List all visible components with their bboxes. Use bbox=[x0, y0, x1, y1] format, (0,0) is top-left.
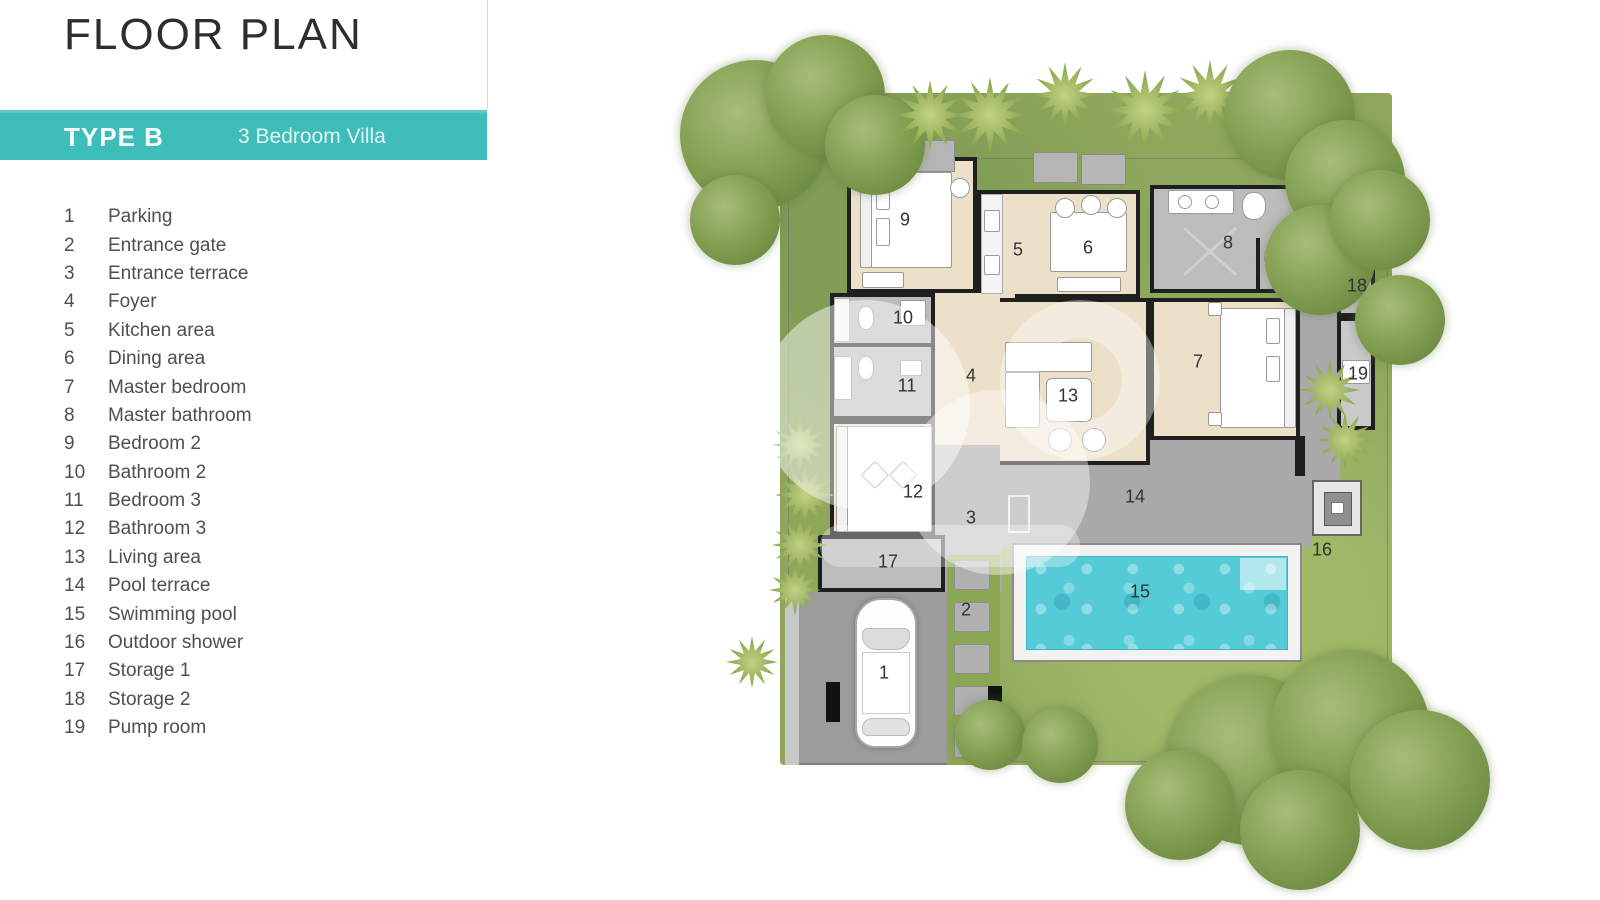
legend-item-1: 1Parking bbox=[64, 203, 404, 231]
pillow bbox=[1266, 318, 1280, 344]
plan-label-pump-room: 19 bbox=[1348, 364, 1368, 385]
dining-chair bbox=[1081, 195, 1101, 215]
legend-list: 1Parking 2Entrance gate 3Entrance terrac… bbox=[64, 203, 404, 742]
nightstand bbox=[1208, 412, 1222, 426]
legend-item-12: 12Bathroom 3 bbox=[64, 515, 404, 543]
legend-num: 2 bbox=[64, 235, 108, 257]
bath-counter bbox=[834, 298, 850, 342]
dining-chair bbox=[1055, 198, 1075, 218]
plan-label-swimming-pool: 15 bbox=[1130, 582, 1150, 603]
plan-label-bedroom-3: 11 bbox=[898, 376, 917, 397]
type-label: TYPE B bbox=[64, 122, 164, 153]
tree bbox=[955, 700, 1025, 770]
legend-item-18: 18Storage 2 bbox=[64, 686, 404, 714]
plan-label-foyer: 4 bbox=[966, 366, 976, 387]
plan-label-kitchen: 5 bbox=[1013, 240, 1023, 261]
legend-label: Foyer bbox=[108, 291, 157, 313]
legend-num: 15 bbox=[64, 604, 108, 626]
nightstand bbox=[1208, 302, 1222, 316]
legend-item-9: 9Bedroom 2 bbox=[64, 430, 404, 458]
stepping-stone bbox=[954, 602, 990, 632]
plan-label-entrance-terrace: 3 bbox=[966, 508, 976, 529]
legend-num: 12 bbox=[64, 518, 108, 540]
legend-item-8: 8Master bathroom bbox=[64, 402, 404, 430]
sofa bbox=[1005, 342, 1092, 372]
plan-label-storage-1: 17 bbox=[878, 552, 898, 573]
legend-num: 6 bbox=[64, 348, 108, 370]
legend-item-13: 13Living area bbox=[64, 544, 404, 572]
dining-bench bbox=[1057, 277, 1121, 292]
stepping-stone bbox=[954, 560, 990, 590]
legend-num: 16 bbox=[64, 632, 108, 654]
legend-num: 4 bbox=[64, 291, 108, 313]
floor-plan-page: FLOOR PLAN TYPE B 3 Bedroom Villa 1Parki… bbox=[0, 0, 1600, 900]
legend-item-19: 19Pump room bbox=[64, 714, 404, 742]
tree bbox=[1125, 750, 1235, 860]
toilet bbox=[1242, 192, 1266, 220]
legend-item-4: 4Foyer bbox=[64, 288, 404, 316]
wall-stub bbox=[1295, 436, 1305, 476]
interior-wall bbox=[834, 343, 931, 347]
legend-num: 8 bbox=[64, 405, 108, 427]
legend-item-3: 3Entrance terrace bbox=[64, 260, 404, 288]
roof-unit bbox=[1081, 154, 1126, 185]
legend-label: Entrance terrace bbox=[108, 263, 248, 285]
bed-headboard bbox=[1284, 308, 1296, 428]
stepping-stone bbox=[954, 644, 990, 674]
kitchen-stove bbox=[984, 255, 1000, 275]
toilet bbox=[858, 356, 874, 380]
lounge-chair bbox=[1082, 428, 1106, 452]
legend-num: 7 bbox=[64, 377, 108, 399]
legend-label: Dining area bbox=[108, 348, 205, 370]
legend-label: Storage 1 bbox=[108, 660, 190, 682]
page-title: FLOOR PLAN bbox=[64, 10, 363, 60]
legend-item-16: 16Outdoor shower bbox=[64, 629, 404, 657]
roof-unit bbox=[1033, 152, 1078, 183]
legend-num: 19 bbox=[64, 717, 108, 739]
legend-label: Bathroom 3 bbox=[108, 518, 206, 540]
basin bbox=[1178, 195, 1192, 209]
gate-post bbox=[826, 682, 840, 722]
tree bbox=[1022, 707, 1098, 783]
legend-label: Storage 2 bbox=[108, 689, 190, 711]
legend-label: Master bathroom bbox=[108, 405, 252, 427]
legend-num: 3 bbox=[64, 263, 108, 285]
plan-label-master-bathroom: 8 bbox=[1223, 233, 1233, 254]
tree bbox=[825, 95, 925, 195]
outdoor-shower bbox=[1312, 480, 1362, 536]
car-windshield bbox=[862, 628, 910, 650]
plan-label-bathroom-2: 10 bbox=[893, 308, 913, 329]
pool-ledge bbox=[1240, 558, 1286, 590]
site-plan: 1 2 3 4 5 6 7 8 9 10 11 12 13 14 15 16 1… bbox=[700, 60, 1480, 880]
dining-chair bbox=[1107, 198, 1127, 218]
legend-num: 13 bbox=[64, 547, 108, 569]
legend-num: 5 bbox=[64, 320, 108, 342]
sink bbox=[900, 360, 922, 376]
type-banner: TYPE B 3 Bedroom Villa bbox=[0, 110, 487, 160]
legend-label: Kitchen area bbox=[108, 320, 215, 342]
legend-label: Bedroom 2 bbox=[108, 433, 201, 455]
bathtub bbox=[834, 356, 852, 400]
plan-label-parking: 1 bbox=[879, 663, 889, 684]
bench bbox=[862, 272, 904, 288]
lounge-chair bbox=[1048, 428, 1072, 452]
legend-num: 10 bbox=[64, 462, 108, 484]
palm-tree bbox=[726, 636, 778, 688]
legend-item-2: 2Entrance gate bbox=[64, 231, 404, 259]
car-rear-window bbox=[862, 718, 910, 736]
tree bbox=[1350, 710, 1490, 850]
legend-label: Bedroom 3 bbox=[108, 490, 201, 512]
sidewalk-strip bbox=[785, 592, 799, 765]
legend-item-17: 17Storage 1 bbox=[64, 657, 404, 685]
plan-label-outdoor-shower: 16 bbox=[1312, 540, 1332, 561]
legend-label: Parking bbox=[108, 206, 172, 228]
legend-label: Pool terrace bbox=[108, 575, 210, 597]
legend-label: Bathroom 2 bbox=[108, 462, 206, 484]
legend-num: 17 bbox=[64, 660, 108, 682]
kitchen-sink bbox=[984, 210, 1000, 232]
legend-num: 18 bbox=[64, 689, 108, 711]
sofa bbox=[1005, 372, 1040, 428]
legend-num: 1 bbox=[64, 206, 108, 228]
legend-item-5: 5Kitchen area bbox=[64, 317, 404, 345]
type-subtitle: 3 Bedroom Villa bbox=[238, 125, 386, 149]
legend-num: 14 bbox=[64, 575, 108, 597]
legend-item-11: 11Bedroom 3 bbox=[64, 487, 404, 515]
divider-line bbox=[487, 0, 488, 110]
legend-num: 9 bbox=[64, 433, 108, 455]
legend-item-6: 6Dining area bbox=[64, 345, 404, 373]
bed-headboard bbox=[836, 426, 848, 532]
plan-label-bedroom-2: 9 bbox=[900, 210, 910, 231]
tree bbox=[1240, 770, 1360, 890]
pillow bbox=[1266, 356, 1280, 382]
legend-item-15: 15Swimming pool bbox=[64, 600, 404, 628]
legend-item-14: 14Pool terrace bbox=[64, 572, 404, 600]
plan-label-dining: 6 bbox=[1083, 238, 1093, 259]
pillow bbox=[876, 218, 890, 246]
plan-label-entrance-gate: 2 bbox=[961, 600, 971, 621]
legend-item-10: 10Bathroom 2 bbox=[64, 459, 404, 487]
toilet bbox=[858, 306, 874, 330]
plan-label-storage-2: 18 bbox=[1347, 276, 1367, 297]
legend-item-7: 7Master bedroom bbox=[64, 373, 404, 401]
plan-label-master-bedroom: 7 bbox=[1193, 352, 1203, 373]
side-table bbox=[950, 178, 970, 198]
legend-label: Swimming pool bbox=[108, 604, 237, 626]
tree bbox=[1355, 275, 1445, 365]
legend-num: 11 bbox=[64, 490, 108, 512]
legend-label: Entrance gate bbox=[108, 235, 226, 257]
plan-label-living: 13 bbox=[1058, 386, 1078, 407]
shower-fixture bbox=[1331, 502, 1344, 514]
terrace-step bbox=[1008, 495, 1030, 533]
legend-label: Master bedroom bbox=[108, 377, 246, 399]
plan-label-bathroom-3: 12 bbox=[903, 482, 923, 503]
kitchen-counter bbox=[981, 194, 1003, 294]
basin bbox=[1205, 195, 1219, 209]
tree bbox=[1330, 170, 1430, 270]
plan-label-pool-terrace: 14 bbox=[1125, 487, 1145, 508]
tree bbox=[690, 175, 780, 265]
legend-label: Pump room bbox=[108, 717, 206, 739]
legend-label: Living area bbox=[108, 547, 201, 569]
legend-label: Outdoor shower bbox=[108, 632, 243, 654]
interior-wall bbox=[1256, 238, 1260, 289]
